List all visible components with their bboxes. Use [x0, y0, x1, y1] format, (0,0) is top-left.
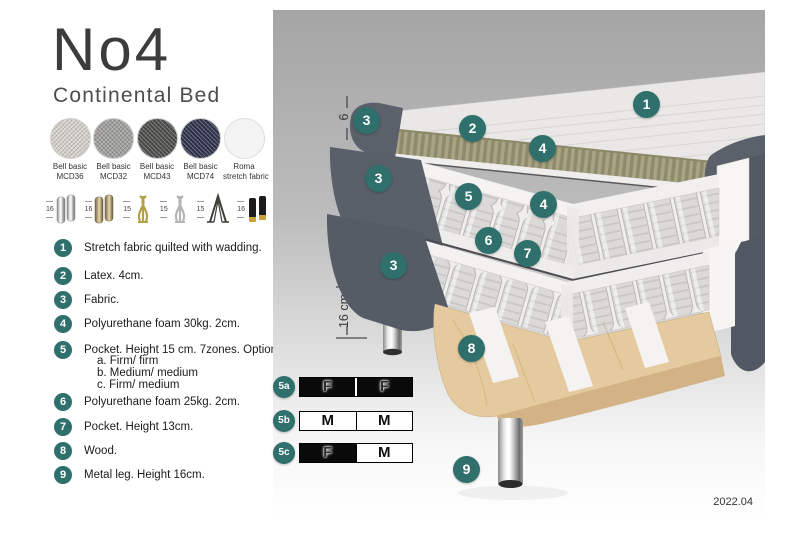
- part-number-badge: 3: [54, 291, 72, 309]
- firmness-table-5c: F M: [299, 443, 413, 463]
- callout-7: 7: [514, 240, 541, 267]
- part-5-option-b: b. Medium/ medium: [97, 367, 198, 379]
- part-description: Metal leg. Height 16cm.: [84, 469, 205, 481]
- firmness-cell: M: [356, 444, 413, 462]
- mattress-corner-strip: [567, 206, 579, 268]
- part-item-3: 3 Fabric.: [54, 291, 119, 309]
- metal-leg-front: [498, 418, 523, 486]
- part-item-4: 4 Polyurethane foam 30kg. 2cm.: [54, 315, 240, 333]
- callout-1: 1: [633, 91, 660, 118]
- leg-shadow: [458, 486, 568, 500]
- callout-3-mid: 3: [365, 165, 392, 192]
- part-item-1: 1 Stretch fabric quilted with wadding.: [54, 239, 262, 257]
- part-5-option-c: c. Firm/ medium: [97, 379, 179, 391]
- part-number-badge: 4: [54, 315, 72, 333]
- firmness-row-5a: 5a F F: [273, 376, 413, 398]
- callout-2: 2: [459, 115, 486, 142]
- callout-4-upper: 4: [529, 135, 556, 162]
- version-label: 2022.04: [713, 496, 753, 508]
- part-item-8: 8 Wood.: [54, 442, 117, 460]
- part-number-badge: 7: [54, 418, 72, 436]
- firmness-table-5b: M M: [299, 411, 413, 431]
- base-right-fabric: [731, 236, 765, 371]
- callout-5: 5: [455, 183, 482, 210]
- part-description: Stretch fabric quilted with wadding.: [84, 242, 262, 254]
- firmness-cell: F: [355, 378, 412, 396]
- callout-8: 8: [458, 335, 485, 362]
- part-description: Polyurethane foam 30kg. 2cm.: [84, 318, 240, 330]
- metal-leg-left-foot: [383, 349, 402, 355]
- part-item-9: 9 Metal leg. Height 16cm.: [54, 466, 205, 484]
- dimension-label-topper: 6: [337, 113, 351, 120]
- part-number-badge: 8: [54, 442, 72, 460]
- firmness-cell: F: [300, 378, 355, 396]
- part-description: Fabric.: [84, 294, 119, 306]
- part-number-badge: 5: [54, 341, 72, 359]
- firmness-cell: M: [356, 412, 413, 430]
- diagram-panel: 6 19 cm 27 cm 16 cm: [273, 10, 765, 523]
- part-description: Latex. 4cm.: [84, 270, 143, 282]
- part-number-badge: 1: [54, 239, 72, 257]
- part-description: Polyurethane foam 25kg. 2cm.: [84, 396, 240, 408]
- metal-leg-front-foot: [499, 480, 523, 488]
- part-number-badge: 6: [54, 393, 72, 411]
- callout-4-lower: 4: [530, 191, 557, 218]
- parts-list: 1 Stretch fabric quilted with wadding. 2…: [0, 0, 273, 533]
- firmness-row-5b: 5b M M: [273, 410, 413, 432]
- callout-3-top: 3: [353, 107, 380, 134]
- callout-6: 6: [475, 227, 502, 254]
- part-item-6: 6 Polyurethane foam 25kg. 2cm.: [54, 393, 240, 411]
- firmness-cell: F: [300, 444, 356, 462]
- firmness-row-5c: 5c F M: [273, 442, 413, 464]
- firmness-cell: M: [300, 412, 356, 430]
- page: No4 Continental Bed Bell basic MCD36 Bel…: [0, 0, 800, 533]
- part-item-5: 5 Pocket. Height 15 cm. 7zones. Option:: [54, 341, 280, 359]
- firmness-badge-5a: 5a: [273, 376, 295, 398]
- part-number-badge: 9: [54, 466, 72, 484]
- leg-highlight: [506, 418, 510, 484]
- left-panel: No4 Continental Bed Bell basic MCD36 Bel…: [0, 0, 273, 533]
- part-item-7: 7 Pocket. Height 13cm.: [54, 418, 193, 436]
- part-description: Pocket. Height 13cm.: [84, 421, 193, 433]
- callout-9: 9: [453, 456, 480, 483]
- firmness-badge-5c: 5c: [273, 442, 295, 464]
- part-number-badge: 2: [54, 267, 72, 285]
- part-5-option-a: a. Firm/ firm: [97, 355, 158, 367]
- firmness-badge-5b: 5b: [273, 410, 295, 432]
- part-description: Wood.: [84, 445, 117, 457]
- part-item-2: 2 Latex. 4cm.: [54, 267, 143, 285]
- callout-3-low: 3: [380, 252, 407, 279]
- firmness-table-5a: F F: [299, 377, 413, 397]
